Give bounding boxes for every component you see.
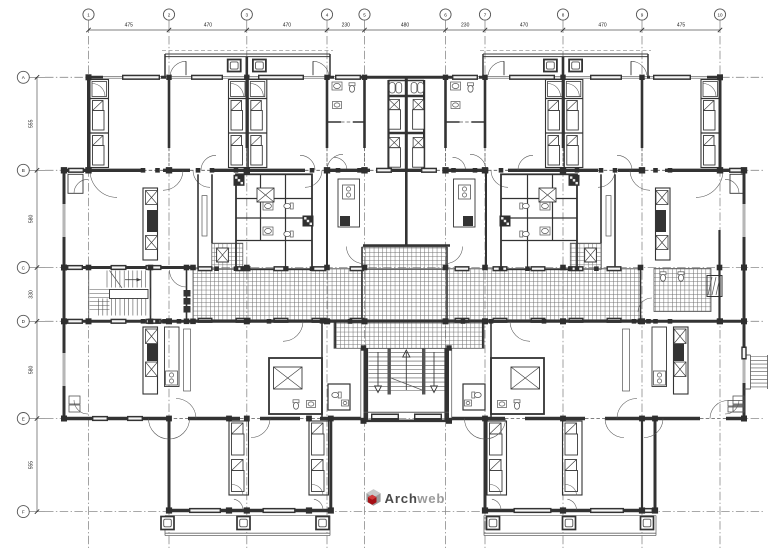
- svg-text:9: 9: [641, 12, 644, 17]
- svg-text:475: 475: [125, 23, 134, 29]
- svg-text:470: 470: [598, 23, 607, 29]
- svg-text:470: 470: [204, 23, 213, 29]
- svg-text:480: 480: [401, 23, 410, 29]
- svg-text:580: 580: [29, 215, 35, 224]
- svg-text:web: web: [416, 491, 445, 506]
- svg-text:2: 2: [168, 12, 171, 17]
- svg-text:230: 230: [461, 23, 470, 29]
- svg-text:3: 3: [246, 12, 249, 17]
- svg-text:470: 470: [520, 23, 529, 29]
- svg-text:10: 10: [717, 12, 723, 17]
- svg-text:Arch: Arch: [385, 491, 418, 506]
- svg-text:E: E: [22, 416, 25, 421]
- svg-text:F: F: [22, 510, 25, 515]
- svg-text:6: 6: [444, 12, 447, 17]
- svg-text:1: 1: [87, 12, 90, 17]
- svg-text:470: 470: [283, 23, 292, 29]
- svg-text:580: 580: [29, 366, 35, 375]
- svg-text:555: 555: [29, 119, 35, 128]
- svg-text:5: 5: [363, 12, 366, 17]
- svg-text:B: B: [22, 168, 25, 173]
- svg-text:555: 555: [29, 461, 35, 470]
- svg-text:8: 8: [562, 12, 565, 17]
- svg-text:330: 330: [29, 290, 35, 299]
- svg-text:475: 475: [677, 23, 686, 29]
- svg-text:230: 230: [342, 23, 351, 29]
- svg-text:4: 4: [326, 12, 329, 17]
- svg-text:7: 7: [484, 12, 487, 17]
